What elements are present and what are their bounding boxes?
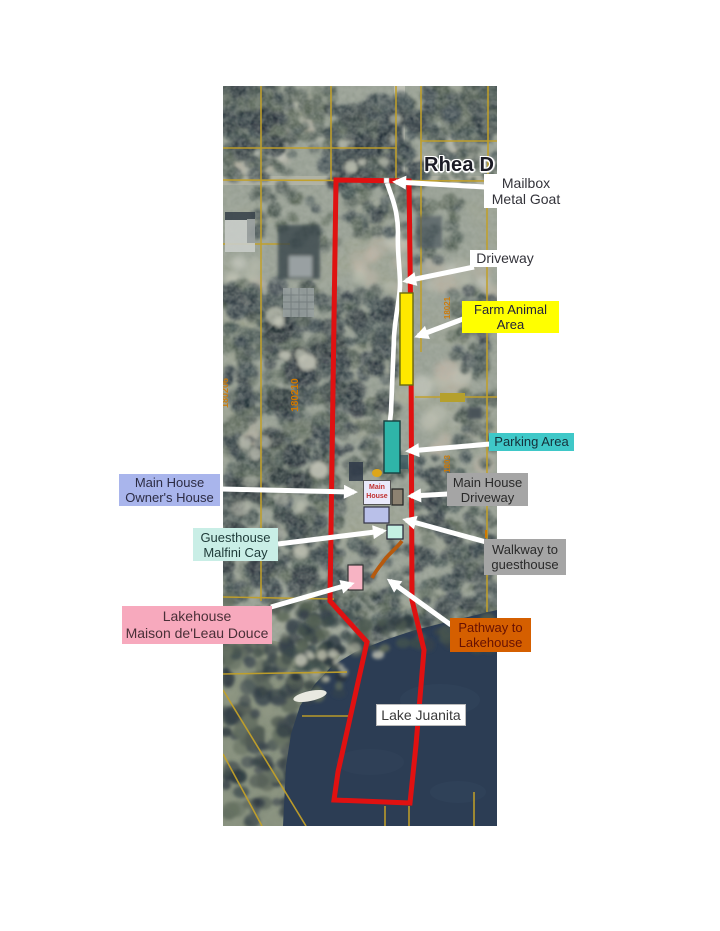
svg-text:180206: 180206 [220,378,230,408]
svg-text:180210: 180210 [290,378,301,412]
svg-text:18021: 18021 [443,296,452,319]
svg-text:1803: 1803 [443,455,452,473]
